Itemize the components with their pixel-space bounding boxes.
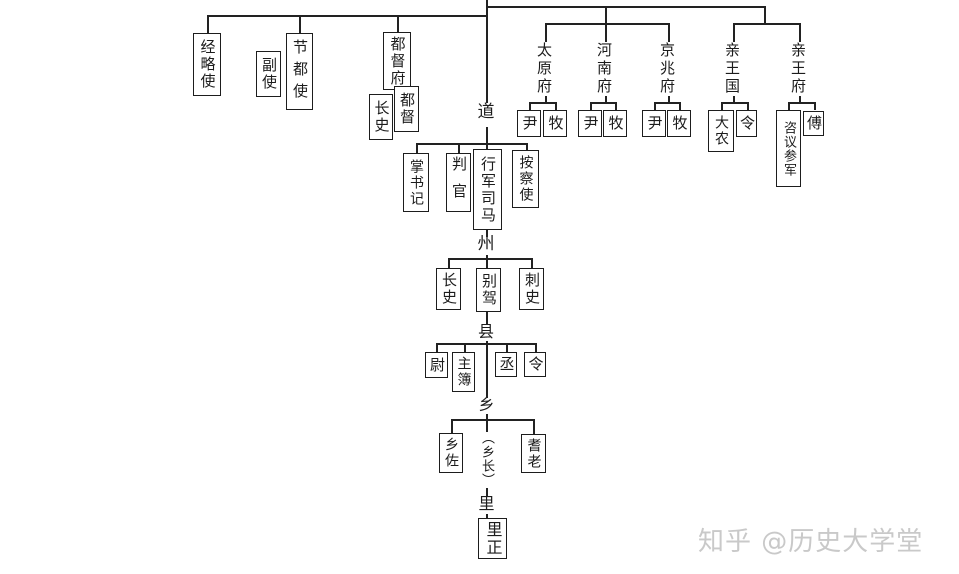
label-henanfu: 河南府 [596, 41, 611, 97]
connector-line [535, 343, 537, 352]
label-qinwangfu: 亲王府 [790, 41, 805, 97]
label-dao: 道 [477, 104, 495, 121]
box-xiangzuo: 乡佐 [439, 433, 463, 473]
connector-line [436, 343, 438, 352]
box-jiedushi: 节都使 [286, 33, 313, 110]
box-jingzhaofu-mu: 牧 [667, 110, 691, 137]
connector-line [533, 419, 535, 434]
connector-line [486, 6, 765, 8]
connector-line [788, 102, 815, 104]
connector-line [486, 230, 488, 237]
box-taiyuanfu-yin: 尹 [517, 110, 541, 137]
connector-line [486, 414, 488, 432]
box-cishi: 刺史 [519, 268, 544, 310]
label-zhou: 州 [477, 236, 495, 253]
connector-line [397, 15, 399, 32]
connector-line [531, 258, 533, 268]
box-henanfu-yin: 尹 [578, 110, 602, 137]
connector-line [207, 15, 209, 33]
connector-line [486, 143, 488, 149]
label-jingzhaofu: 京兆府 [659, 41, 674, 97]
box-xianling: 令 [524, 352, 546, 377]
box-ziyicanjun: 咨议参军 [776, 110, 801, 187]
connector-line [721, 102, 723, 110]
box-zhou-zhangshi: 长史 [436, 268, 461, 310]
label-xian: 县 [477, 324, 495, 340]
box-xingjunsima: 行军司马 [473, 149, 502, 230]
box-dudufu-zhangshi: 长史 [369, 94, 393, 140]
box-guoling: 令 [736, 110, 757, 137]
box-zhangshuji: 掌书记 [403, 153, 429, 212]
connector-line [654, 102, 656, 110]
connector-line [590, 102, 616, 104]
box-fu: 傅 [803, 111, 824, 136]
label-xiang: 乡 [478, 397, 495, 413]
connector-line [721, 102, 748, 104]
connector-line [615, 102, 617, 110]
box-danong: 大农 [708, 110, 734, 152]
connector-line [814, 102, 816, 110]
connector-line [654, 102, 680, 104]
connector-line [416, 143, 418, 153]
box-anchashi: 按察使 [512, 150, 539, 208]
box-qilao: 耆老 [521, 434, 546, 473]
connector-line [416, 143, 527, 145]
box-dudu: 都督 [394, 86, 419, 132]
connector-line [526, 143, 528, 150]
connector-line [486, 127, 488, 143]
label-qinwangguo: 亲王国 [724, 41, 739, 97]
connector-line [788, 102, 790, 110]
connector-line [451, 419, 453, 433]
connector-line [529, 102, 556, 104]
label-taiyuanfu: 太原府 [536, 41, 551, 97]
box-henanfu-mu: 牧 [603, 110, 627, 137]
connector-line [486, 312, 488, 324]
box-wei: 尉 [425, 352, 448, 378]
connector-line [679, 102, 681, 110]
connector-line [451, 419, 534, 421]
connector-line [464, 343, 466, 352]
connector-line [436, 343, 536, 345]
connector-line [486, 255, 488, 268]
box-jinglueshi: 经略使 [193, 33, 221, 96]
box-dudufu: 都督府 [383, 32, 411, 90]
box-taiyuanfu-mu: 牧 [543, 110, 567, 137]
box-cheng: 丞 [495, 352, 517, 377]
connector-line [545, 23, 669, 25]
box-fushi: 副使 [256, 51, 281, 97]
watermark: 知乎 @历史大学堂 [698, 521, 953, 555]
label-li: 里 [478, 496, 495, 512]
box-jingzhaofu-yin: 尹 [642, 110, 666, 137]
label-xiang-head: （乡长） [480, 430, 493, 488]
box-zhubu: 主簿 [452, 352, 475, 392]
connector-line [486, 514, 488, 519]
connector-line [506, 343, 508, 352]
connector-line [605, 23, 607, 42]
connector-line [458, 143, 460, 153]
connector-line [486, 488, 488, 496]
connector-line [448, 258, 532, 260]
connector-line [590, 102, 592, 110]
org-chart-canvas: 经略使 副使 节都使 都督府 长史 都督 太原府 河南府 京兆府 亲王国 亲王府… [0, 0, 959, 574]
connector-line [733, 23, 735, 42]
connector-line [299, 15, 301, 33]
connector-line [486, 341, 488, 398]
box-panguan: 判官 [446, 153, 471, 212]
connector-line [668, 23, 670, 42]
box-lizheng: 里正 [478, 518, 507, 559]
connector-line [764, 6, 766, 23]
connector-line [529, 102, 531, 110]
connector-line [733, 23, 800, 25]
connector-line [207, 15, 487, 17]
connector-line [448, 258, 450, 268]
connector-line [605, 6, 607, 23]
connector-line [555, 102, 557, 110]
connector-line [747, 102, 749, 110]
connector-line [545, 23, 547, 42]
connector-line [799, 23, 801, 42]
box-biejia: 别驾 [476, 268, 501, 312]
